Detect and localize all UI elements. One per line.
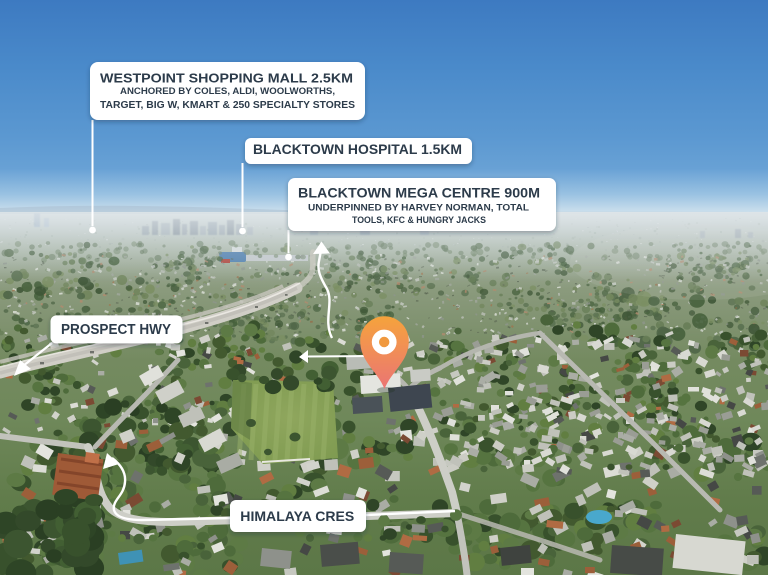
svg-text:TOOLS, KFC & HUNGRY JACKS: TOOLS, KFC & HUNGRY JACKS <box>352 215 486 225</box>
svg-text:BLACKTOWN HOSPITAL 1.5KM: BLACKTOWN HOSPITAL 1.5KM <box>253 141 462 157</box>
svg-text:ANCHORED BY COLES, ALDI, WOOLW: ANCHORED BY COLES, ALDI, WOOLWORTHS, <box>120 86 335 97</box>
svg-text:UNDERPINNED BY HARVEY NORMAN,: UNDERPINNED BY HARVEY NORMAN, TOTAL <box>308 203 529 213</box>
svg-text:PROSPECT HWY: PROSPECT HWY <box>61 322 171 338</box>
svg-text:HIMALAYA CRES: HIMALAYA CRES <box>240 508 354 524</box>
svg-text:WESTPOINT SHOPPING MALL 2.5KM: WESTPOINT SHOPPING MALL 2.5KM <box>100 72 353 86</box>
svg-text:TARGET, BIG W, KMART & 250 SPE: TARGET, BIG W, KMART & 250 SPECIALTY STO… <box>100 100 355 111</box>
svg-text:BLACKTOWN MEGA CENTRE 900M: BLACKTOWN MEGA CENTRE 900M <box>298 186 540 201</box>
